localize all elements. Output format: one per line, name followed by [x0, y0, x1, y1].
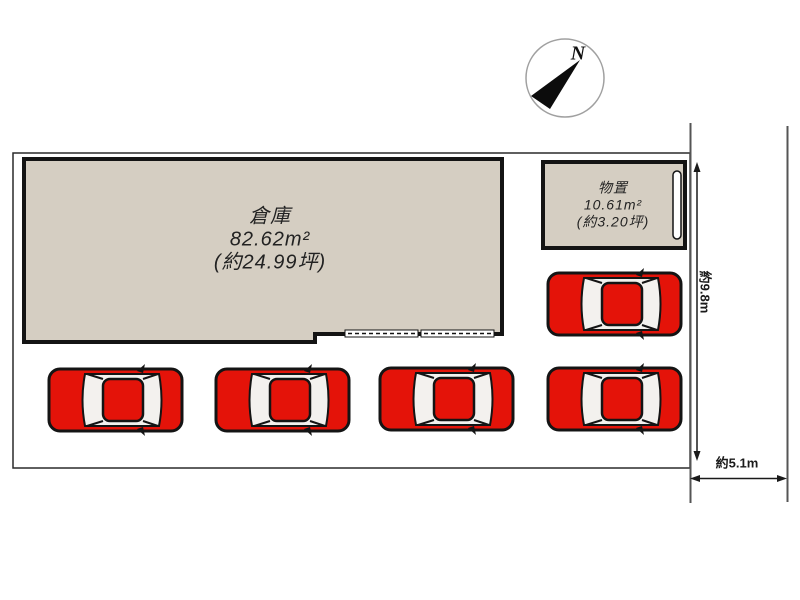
shed-area: 10.61m²	[577, 197, 650, 214]
compass	[526, 39, 604, 117]
shed-area-tsubo: (約3.20坪)	[577, 214, 650, 231]
warehouse-label: 倉庫 82.62m² (約24.99坪)	[214, 206, 326, 275]
warehouse-door-right	[421, 330, 494, 337]
dimension-label-vertical: 約9.8m	[697, 271, 716, 314]
compass-north-label: N	[571, 43, 585, 66]
warehouse-name: 倉庫	[214, 206, 326, 229]
shed-door	[673, 171, 681, 239]
warehouse-area: 82.62m²	[214, 229, 326, 252]
car-icon-4	[548, 363, 681, 435]
site-plan: N 倉庫 82.62m² (約24.99坪) 物置 10.61m² (約3.20…	[0, 0, 800, 600]
shed-name: 物置	[577, 180, 650, 197]
warehouse-door-left	[345, 330, 418, 337]
car-icon-5	[548, 268, 681, 340]
car-icon-3	[380, 363, 513, 435]
shed-label: 物置 10.61m² (約3.20坪)	[577, 180, 650, 231]
warehouse-area-tsubo: (約24.99坪)	[214, 252, 326, 275]
car-icon-1	[49, 364, 182, 436]
car-icon-2	[216, 364, 349, 436]
dimension-label-horizontal: 約5.1m	[716, 453, 759, 472]
dimension-arrow-horizontal	[690, 475, 787, 482]
site-plan-drawing	[0, 0, 800, 600]
